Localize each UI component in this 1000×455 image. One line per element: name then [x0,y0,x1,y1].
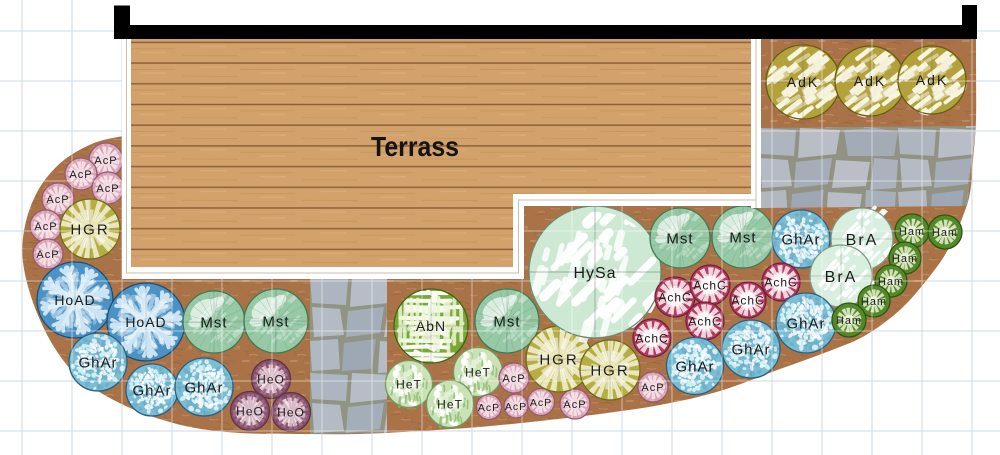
svg-text:AchC: AchC [693,278,726,292]
svg-text:AchC: AchC [658,290,691,304]
svg-text:GhAr: GhAr [731,341,770,358]
svg-text:Mst: Mst [493,313,520,330]
svg-text:AcP: AcP [505,401,527,413]
svg-text:AcP: AcP [34,221,57,233]
svg-text:Ham: Ham [899,226,925,238]
svg-text:Ham: Ham [932,227,958,239]
svg-text:Terrass: Terrass [371,131,459,162]
svg-text:AchC: AchC [764,275,797,289]
svg-text:Ham: Ham [892,253,918,265]
svg-text:HeO: HeO [257,372,285,386]
svg-text:Mst: Mst [666,230,693,247]
svg-text:AcP: AcP [502,373,525,385]
svg-text:AchC: AchC [688,314,721,328]
svg-text:Ham: Ham [878,276,904,288]
svg-text:HeO: HeO [277,405,305,419]
svg-text:HGR: HGR [539,351,578,368]
svg-text:HeT: HeT [437,397,463,411]
svg-text:GhAr: GhAr [132,382,171,399]
svg-text:AbN: AbN [416,318,446,334]
svg-text:GhAr: GhAr [675,358,714,375]
svg-text:GhAr: GhAr [781,231,820,248]
svg-text:Mst: Mst [200,314,227,331]
svg-text:GhAr: GhAr [786,315,825,332]
svg-text:AdK: AdK [916,72,948,88]
svg-text:AcP: AcP [478,402,500,414]
svg-text:HeT: HeT [465,365,491,379]
svg-text:HoAD: HoAD [54,292,95,308]
svg-text:GhAr: GhAr [78,354,117,371]
svg-text:HoAD: HoAD [125,314,166,330]
svg-text:HGR: HGR [70,221,109,238]
svg-text:AchC: AchC [731,293,764,307]
svg-text:AcP: AcP [69,169,92,181]
svg-text:Ham: Ham [836,315,862,327]
svg-text:AcP: AcP [641,382,664,394]
svg-text:Mst: Mst [262,313,289,330]
svg-text:AcP: AcP [36,249,59,261]
svg-text:AchC: AchC [635,331,668,345]
svg-text:Mst: Mst [729,229,756,246]
svg-text:BrA: BrA [825,269,858,286]
svg-text:HeT: HeT [396,377,422,391]
svg-text:AcP: AcP [563,399,586,411]
svg-text:AcP: AcP [96,183,119,195]
svg-text:AcP: AcP [94,155,117,167]
svg-text:Ham: Ham [861,296,887,308]
svg-text:AdK: AdK [854,73,886,89]
svg-text:HySa: HySa [573,265,616,282]
svg-text:GhAr: GhAr [184,379,223,396]
svg-text:AcP: AcP [530,397,552,409]
svg-text:HeO: HeO [236,404,264,418]
svg-text:BrA: BrA [846,232,879,249]
svg-text:AdK: AdK [787,74,819,90]
svg-text:HGR: HGR [590,362,629,379]
svg-text:AcP: AcP [46,194,69,206]
